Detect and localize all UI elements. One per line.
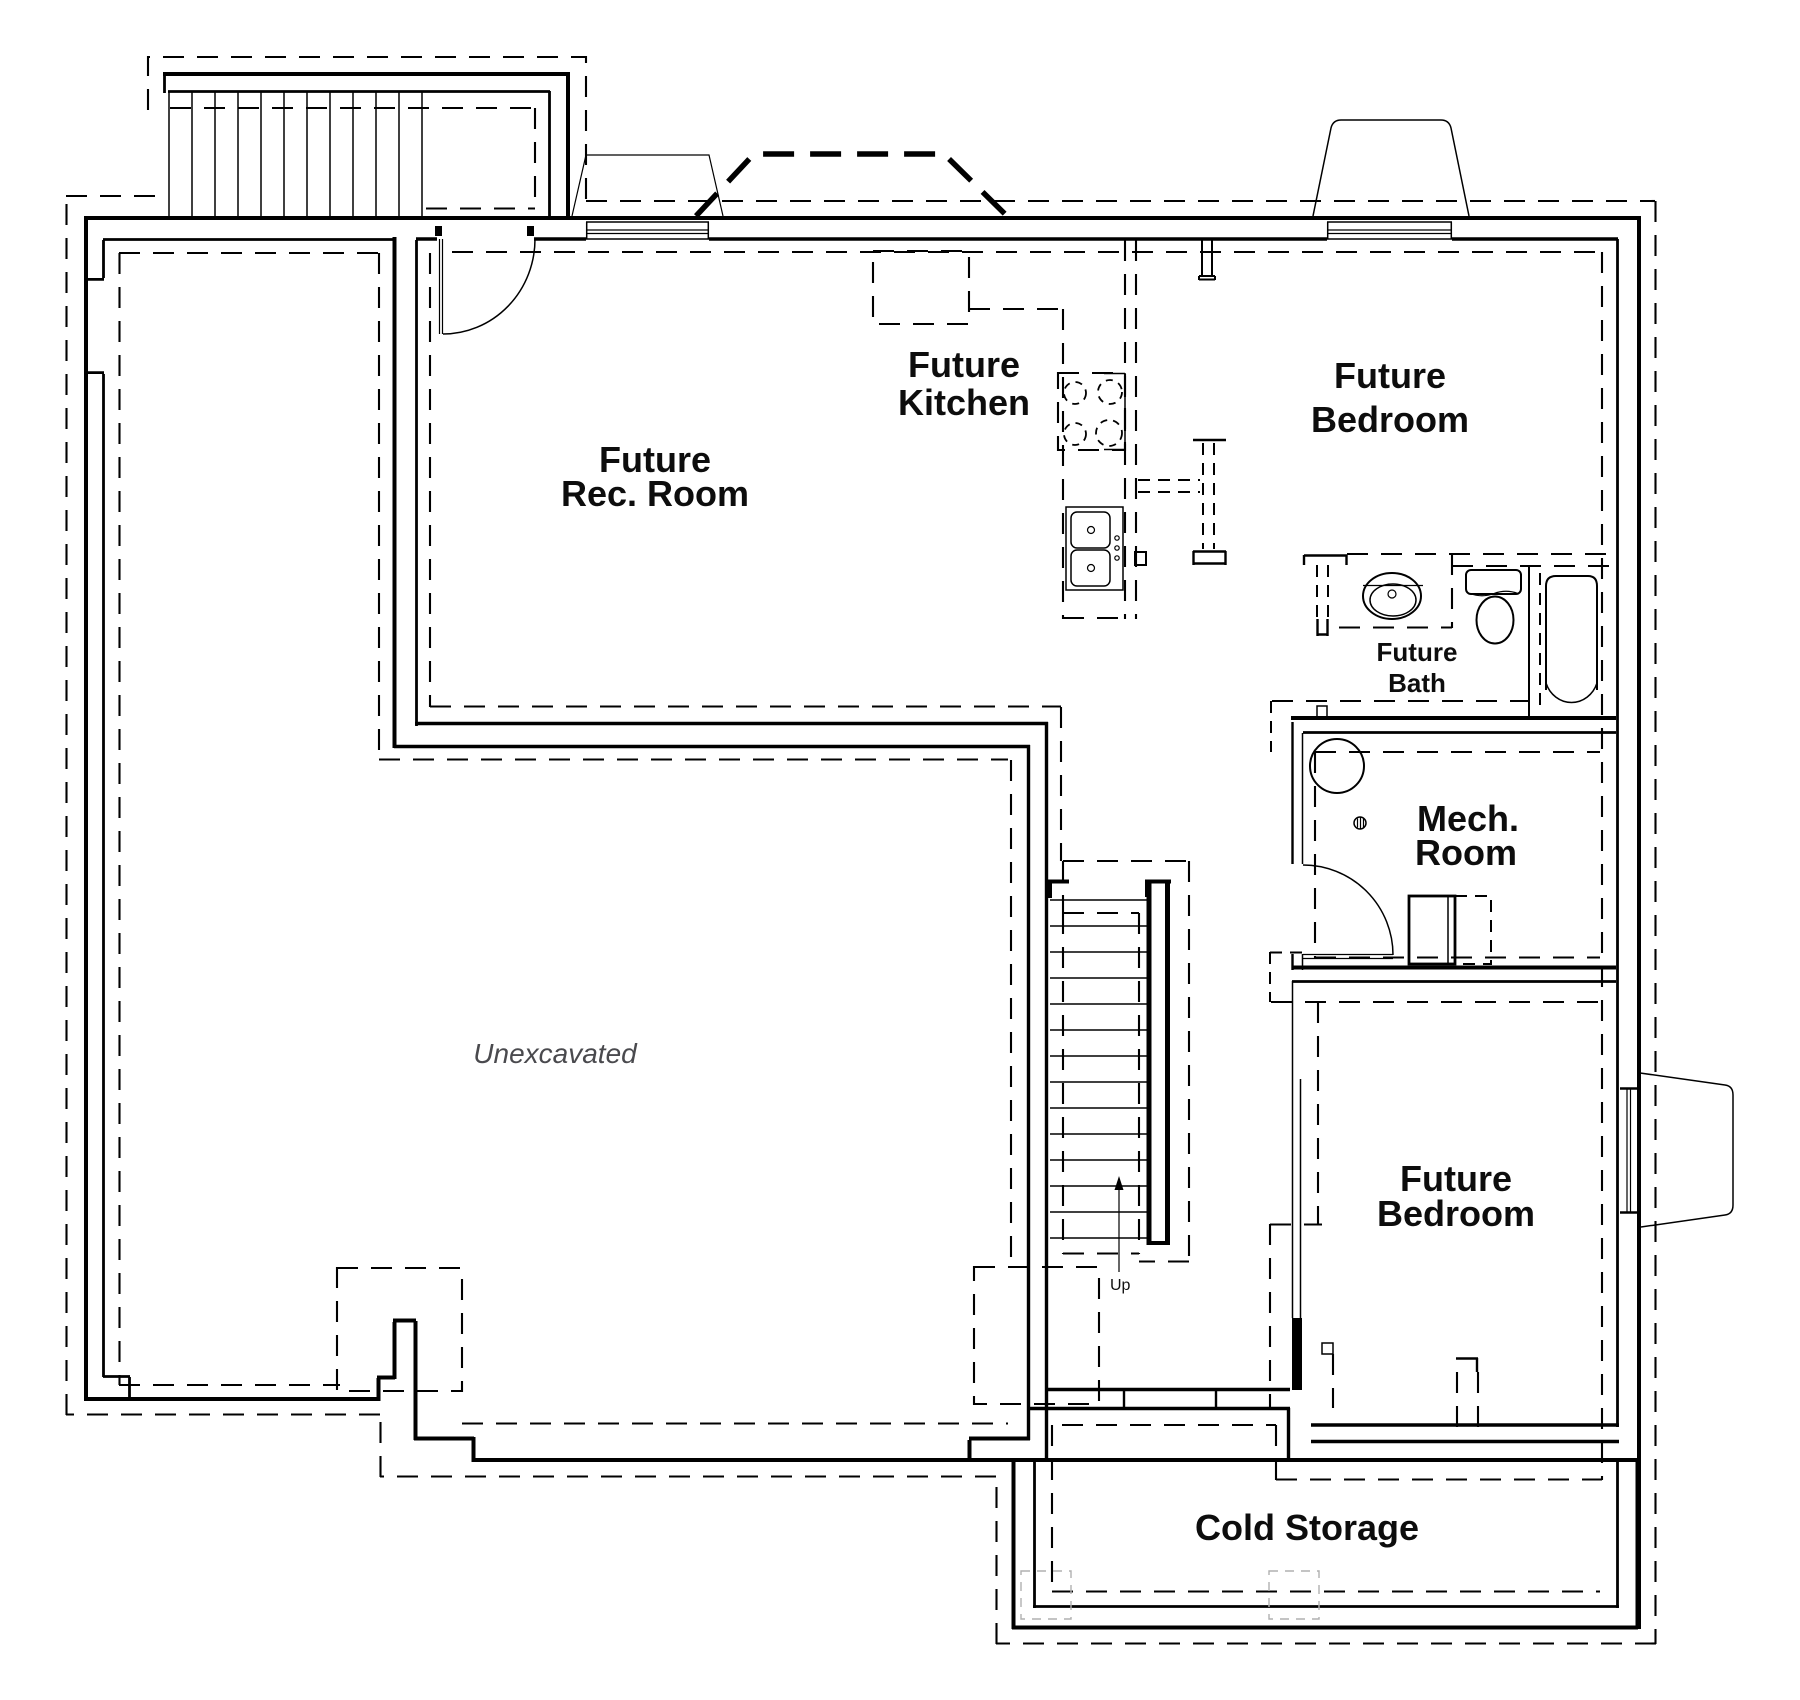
svg-text:Rec. Room: Rec. Room [561, 473, 749, 514]
svg-text:Bedroom: Bedroom [1311, 399, 1469, 440]
svg-text:Cold Storage: Cold Storage [1195, 1507, 1419, 1548]
svg-text:Up: Up [1110, 1277, 1131, 1294]
svg-text:Unexcavated: Unexcavated [473, 1038, 638, 1069]
svg-text:Room: Room [1415, 832, 1517, 873]
svg-text:Future: Future [908, 344, 1020, 385]
svg-text:Future: Future [1334, 355, 1446, 396]
svg-text:Kitchen: Kitchen [898, 382, 1030, 423]
svg-text:Future: Future [1377, 637, 1458, 667]
svg-text:Bedroom: Bedroom [1377, 1193, 1535, 1234]
svg-text:Bath: Bath [1388, 668, 1446, 698]
